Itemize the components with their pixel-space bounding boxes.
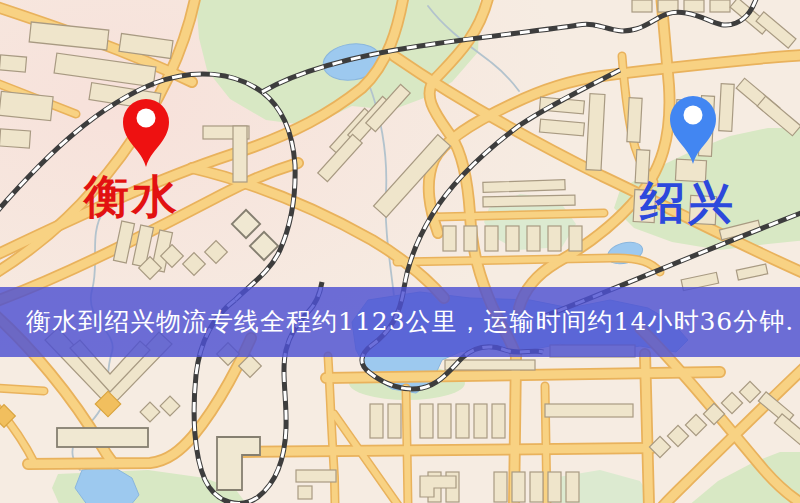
route-info-text: 衡水到绍兴物流专线全程约1123公里，运输时间约14小时36分钟. [26, 307, 794, 336]
origin-pin-dot [137, 109, 156, 128]
map-image: 衡水 绍兴 衡水到绍兴物流专线全程约1123公里，运输时间约14小时36分钟. [0, 0, 800, 503]
origin-city-label: 衡水 [82, 170, 180, 223]
map-canvas: 衡水 绍兴 [0, 0, 800, 503]
destination-city-label: 绍兴 [639, 176, 736, 229]
destination-pin-dot [684, 106, 703, 125]
route-info-banner: 衡水到绍兴物流专线全程约1123公里，运输时间约14小时36分钟. [0, 287, 800, 357]
